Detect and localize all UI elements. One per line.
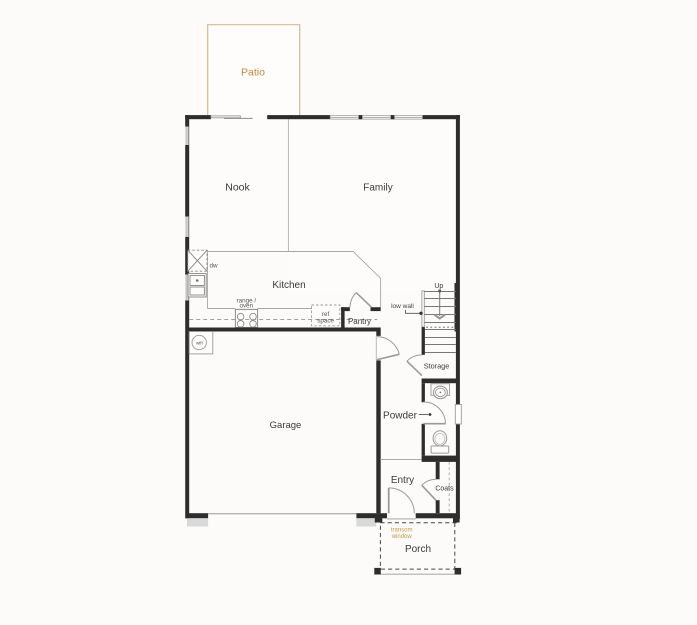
svg-text:Kitchen: Kitchen bbox=[272, 280, 305, 291]
svg-text:Powder: Powder bbox=[383, 411, 418, 422]
svg-text:dw: dw bbox=[210, 263, 219, 270]
svg-text:Pantry: Pantry bbox=[348, 317, 371, 326]
svg-text:Patio: Patio bbox=[241, 67, 265, 79]
svg-text:space: space bbox=[317, 318, 334, 325]
svg-text:Entry: Entry bbox=[391, 475, 414, 486]
svg-text:Storage: Storage bbox=[424, 361, 450, 370]
svg-text:Garage: Garage bbox=[270, 420, 302, 431]
svg-text:Coats: Coats bbox=[435, 486, 454, 493]
svg-text:Family: Family bbox=[363, 182, 392, 193]
svg-text:oven: oven bbox=[239, 303, 253, 310]
svg-text:Porch: Porch bbox=[405, 544, 431, 555]
svg-text:low wall: low wall bbox=[391, 303, 414, 310]
svg-text:Up: Up bbox=[434, 283, 443, 290]
svg-text:Nook: Nook bbox=[225, 181, 250, 193]
svg-text:transom: transom bbox=[391, 528, 413, 534]
svg-text:wifi: wifi bbox=[196, 340, 203, 345]
svg-text:window: window bbox=[391, 534, 413, 540]
